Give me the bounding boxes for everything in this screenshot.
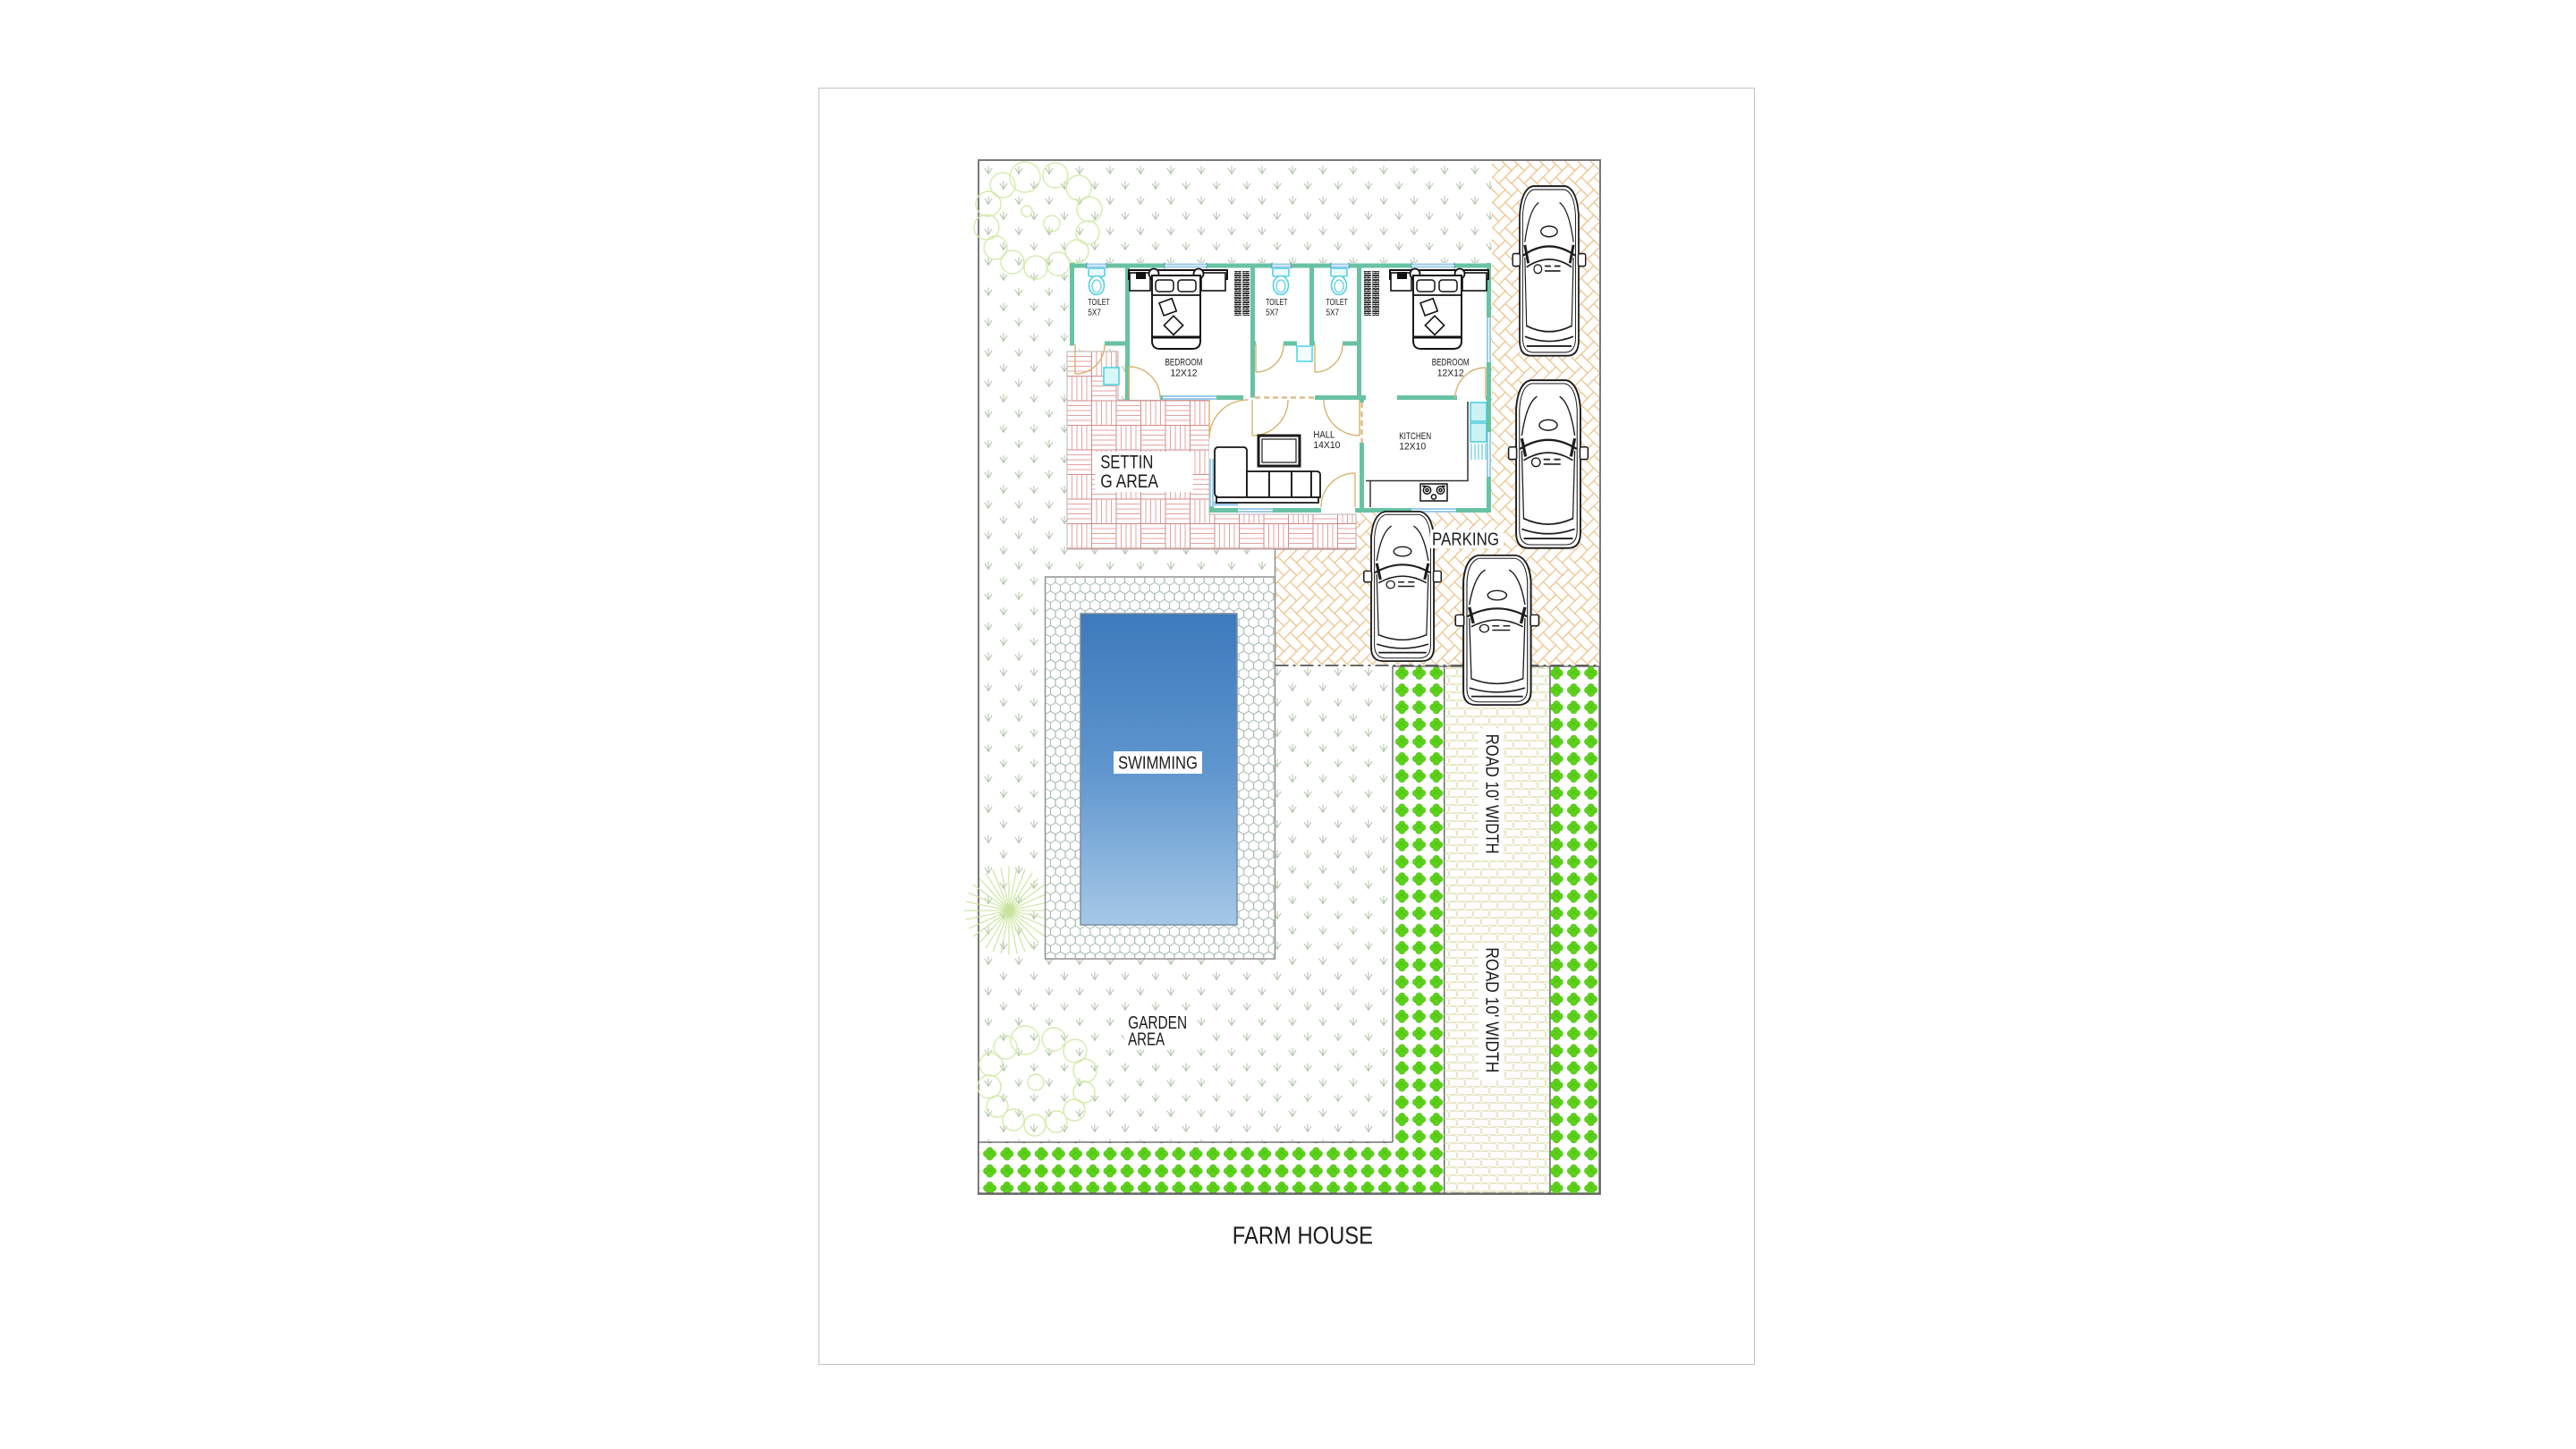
svg-text:PARKING: PARKING xyxy=(1432,530,1499,550)
svg-text:12X10: 12X10 xyxy=(1399,442,1426,453)
svg-text:AREA: AREA xyxy=(1128,1030,1165,1049)
svg-text:KITCHEN: KITCHEN xyxy=(1399,431,1431,442)
svg-text:ROAD 10' WIDTH: ROAD 10' WIDTH xyxy=(1482,734,1502,854)
svg-text:SETTIN: SETTIN xyxy=(1100,453,1153,473)
svg-text:ROAD 10' WIDTH: ROAD 10' WIDTH xyxy=(1482,947,1502,1072)
svg-text:TOILET: TOILET xyxy=(1088,297,1110,308)
svg-text:HALL: HALL xyxy=(1313,430,1335,441)
svg-text:SWIMMING: SWIMMING xyxy=(1118,754,1198,774)
svg-text:12X12: 12X12 xyxy=(1437,369,1464,379)
svg-text:5X7: 5X7 xyxy=(1088,308,1101,318)
svg-text:14X10: 14X10 xyxy=(1313,440,1340,451)
svg-text:TOILET: TOILET xyxy=(1326,297,1349,308)
svg-text:TOILET: TOILET xyxy=(1266,297,1288,308)
svg-text:FARM HOUSE: FARM HOUSE xyxy=(1233,1221,1373,1249)
svg-text:BEDROOM: BEDROOM xyxy=(1165,358,1203,369)
svg-text:12X12: 12X12 xyxy=(1171,369,1198,379)
svg-text:5X7: 5X7 xyxy=(1326,308,1340,318)
svg-text:G AREA: G AREA xyxy=(1100,471,1158,492)
svg-text:5X7: 5X7 xyxy=(1266,308,1279,318)
svg-text:BEDROOM: BEDROOM xyxy=(1432,358,1470,369)
